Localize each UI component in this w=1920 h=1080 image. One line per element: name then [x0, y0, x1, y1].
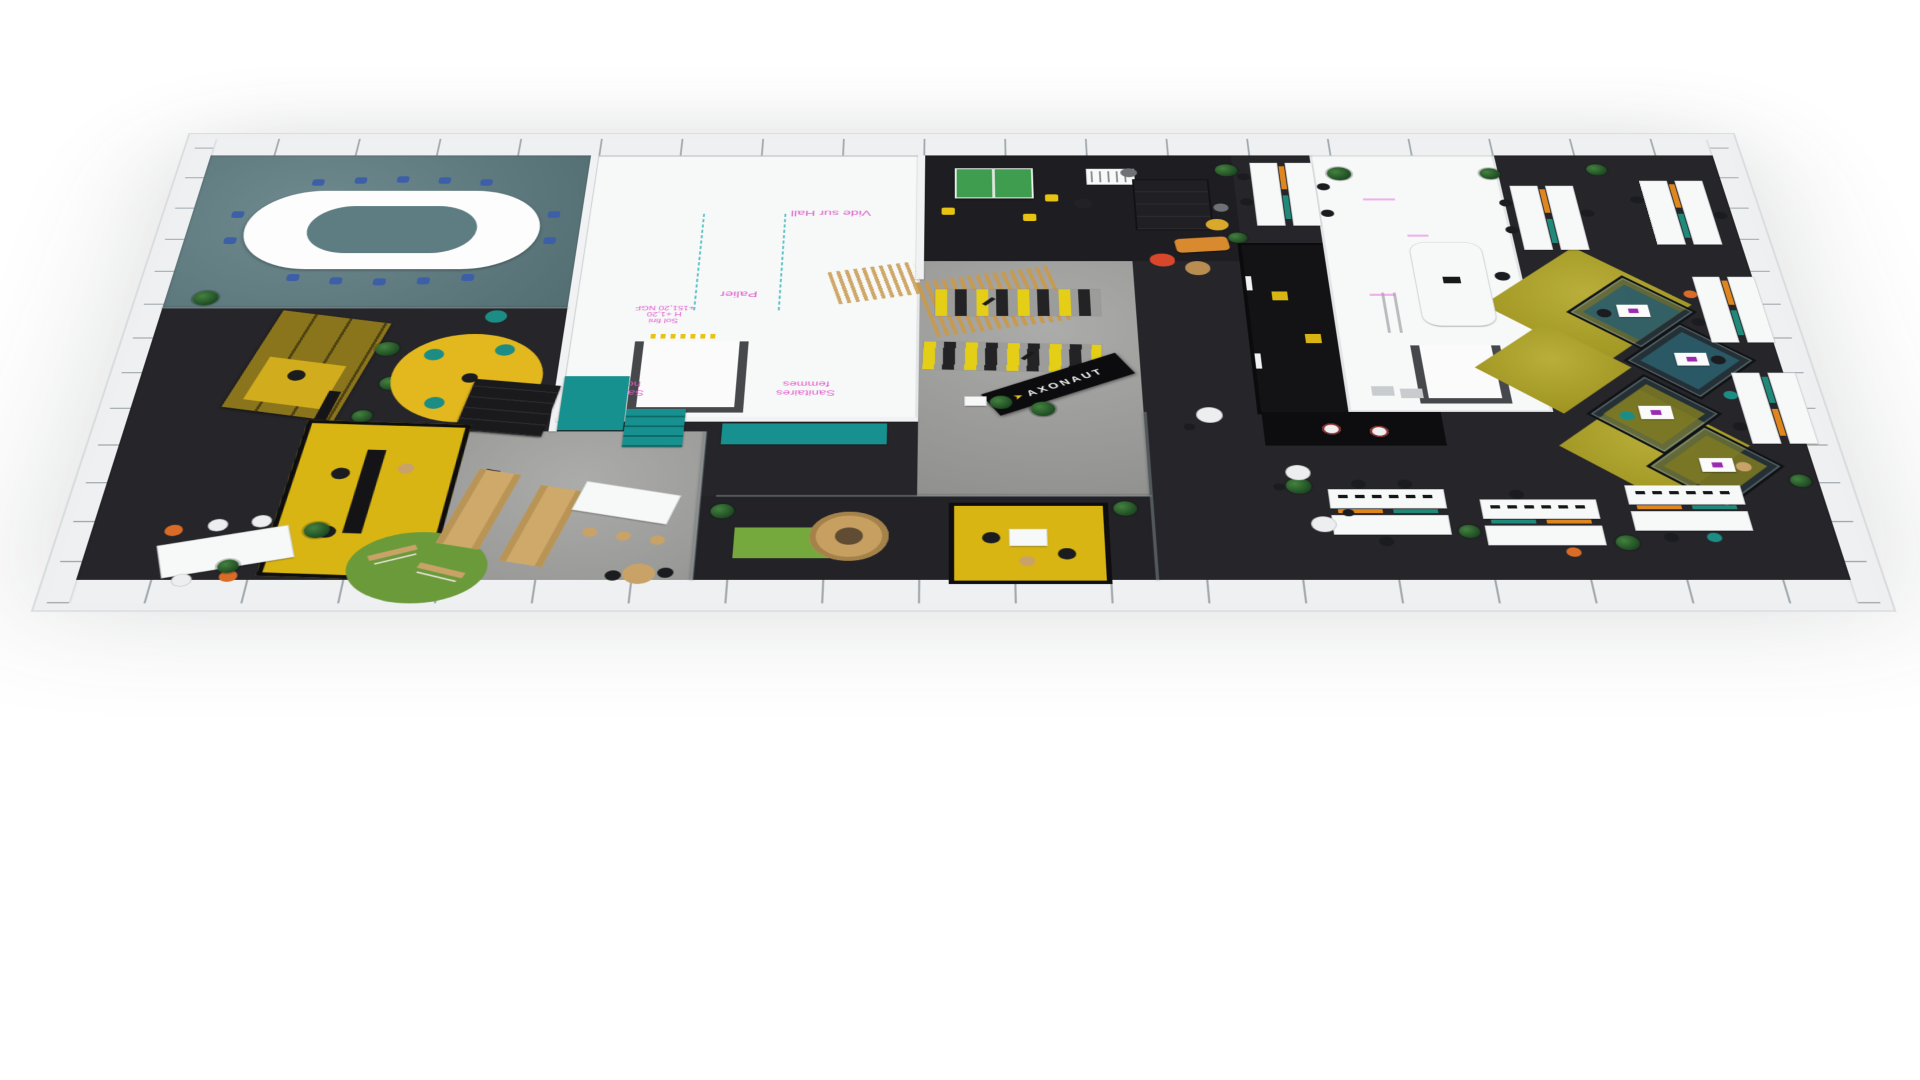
pod-table [1616, 305, 1651, 317]
desk-divider [1393, 509, 1438, 513]
elevator-door [1400, 389, 1424, 399]
stair-hatch [650, 334, 716, 339]
chair [1732, 422, 1749, 431]
chair [438, 177, 452, 184]
chair [1565, 547, 1582, 556]
chair [416, 277, 430, 284]
chair [1580, 210, 1595, 217]
elevator-door [1371, 386, 1395, 396]
render-canvas: Vide sur Hall Palier Sol fini H +1,20 +1… [0, 0, 1920, 1080]
monitors [1338, 495, 1436, 498]
label-sol-fini-l3: +151,20 NGF [635, 304, 695, 310]
plan-annotation-speck [1363, 198, 1395, 200]
chair [1722, 391, 1739, 399]
high-table [1073, 198, 1092, 208]
seat-cube-yellow [1305, 334, 1322, 343]
bistro-table [1196, 408, 1222, 423]
pedestal [965, 397, 985, 405]
beanbag-red [1149, 254, 1175, 267]
chair [329, 467, 351, 479]
stairwell-core1 [626, 341, 749, 412]
chair [1691, 318, 1707, 326]
chair [982, 532, 1000, 543]
beanbag-yellow [1205, 219, 1229, 230]
chair [1397, 480, 1413, 489]
boardroom-oval-table [233, 191, 547, 269]
glass-center-front [716, 495, 1152, 497]
chair [207, 520, 228, 531]
teal-cabinet-row [721, 423, 887, 444]
desk-cluster [1510, 186, 1588, 249]
stool-yellow [1023, 214, 1037, 221]
laptop [1686, 357, 1697, 362]
plan-annotation-speck [1407, 235, 1428, 237]
armchair [484, 310, 508, 322]
chair [286, 274, 301, 281]
desk-cluster [1640, 181, 1722, 244]
chair [1237, 173, 1251, 180]
pouf-gray [1213, 204, 1229, 212]
chair [1663, 533, 1680, 542]
desk-cluster [1250, 163, 1321, 225]
pod-table [1638, 406, 1674, 419]
plan-annotation-speck [1370, 294, 1396, 296]
pod-table [1699, 458, 1736, 472]
chair [1378, 537, 1395, 546]
label-sol-fini: Sol fini H +1,20 +151,20 NGF [619, 304, 710, 323]
teal-lockers [557, 376, 630, 430]
plant [1031, 402, 1056, 416]
plant [1788, 474, 1813, 487]
desk-divider [1637, 505, 1683, 509]
pouf-gray [1120, 168, 1137, 177]
meeting-box-table [342, 450, 386, 534]
plant [1285, 478, 1312, 493]
acoustic-booth [222, 310, 392, 421]
monitors [1635, 491, 1733, 494]
chair [329, 277, 343, 284]
plant [1214, 164, 1238, 176]
stool-yellow [1045, 194, 1058, 201]
stool [1273, 483, 1285, 490]
teal-shelf [622, 409, 686, 447]
sanitaires-word: Sanitaires [776, 389, 835, 398]
pod-table [1674, 353, 1710, 366]
tablet [1442, 277, 1461, 284]
plant [1113, 501, 1137, 515]
chair [461, 274, 475, 281]
desk-cluster [1625, 486, 1753, 534]
desk-divider [1546, 520, 1592, 524]
plant [1614, 535, 1641, 550]
chair [396, 176, 410, 183]
laptop [1628, 309, 1639, 313]
chair [354, 177, 368, 184]
open-meeting-box [949, 503, 1113, 584]
tiered-seating [1134, 180, 1212, 229]
ping-pong-net [992, 168, 995, 198]
chair [547, 211, 560, 218]
meeting-box-table [1010, 529, 1047, 545]
label-sol-fini-l2: H +1,20 [646, 310, 682, 316]
label-palier: Palier [694, 289, 783, 298]
desk [1481, 500, 1600, 518]
desk [1632, 512, 1752, 530]
chair [1058, 548, 1077, 559]
plant [1458, 525, 1482, 538]
back-glazing-band [192, 139, 1731, 156]
chair [311, 179, 325, 186]
bistro-table [1311, 517, 1337, 531]
chair [1706, 533, 1724, 542]
chair [1240, 198, 1254, 205]
dartboard [1321, 423, 1341, 434]
stool [1184, 423, 1196, 430]
chair [163, 525, 184, 536]
femmes-word: femmes [782, 380, 829, 389]
ping-pong-table [955, 168, 1034, 198]
crosswalk-stripes [935, 289, 1101, 316]
chair [543, 237, 557, 244]
plant [990, 396, 1013, 409]
stool [1342, 509, 1355, 516]
glass-boardroom-front [162, 307, 568, 309]
desk-divider [1692, 505, 1738, 509]
chair [1713, 212, 1729, 219]
desk-cluster [1481, 500, 1607, 549]
desk [1625, 486, 1744, 504]
chair [372, 278, 386, 285]
bistro-table [1286, 466, 1311, 480]
left-glazing-band [47, 139, 216, 604]
chair [1320, 210, 1334, 217]
label-sol-fini-l1: Sol fini [648, 317, 678, 323]
desk-divider [1491, 520, 1537, 524]
stool-yellow [942, 208, 955, 215]
chair [1629, 196, 1644, 203]
label-vide-sur-hall: Vide sur Hall [760, 209, 902, 218]
plant [1228, 232, 1248, 243]
chair [1508, 490, 1525, 499]
monitors [1490, 505, 1588, 508]
coffee-table-wood [1185, 261, 1212, 275]
chair [1316, 183, 1330, 190]
desk [1329, 490, 1446, 508]
chair [396, 463, 416, 474]
plant [215, 560, 240, 574]
plant [1585, 164, 1608, 175]
laptop [1650, 410, 1662, 415]
boardroom-table-hole [301, 206, 481, 253]
desk [1486, 526, 1606, 545]
label-sanitaires-femmes: Sanitaires femmes [762, 379, 850, 397]
chair [1682, 290, 1698, 298]
laptop [1711, 462, 1723, 467]
chair [251, 516, 272, 527]
axonaut-logo-icon: ➤ [1010, 391, 1026, 401]
chair [480, 179, 493, 186]
floorplan-3d-view[interactable]: Vide sur Hall Palier Sol fini H +1,20 +1… [0, 0, 1920, 1080]
wall-core1-right [916, 155, 925, 279]
chair [1350, 480, 1366, 489]
plant [374, 342, 401, 356]
desk [1332, 516, 1450, 534]
seat-cube-yellow [1271, 291, 1288, 300]
chair [1019, 556, 1036, 566]
dartboard-wall [1261, 412, 1447, 446]
office-floor-plan: Vide sur Hall Palier Sol fini H +1,20 +1… [33, 134, 1894, 610]
donut-hole [835, 527, 864, 544]
